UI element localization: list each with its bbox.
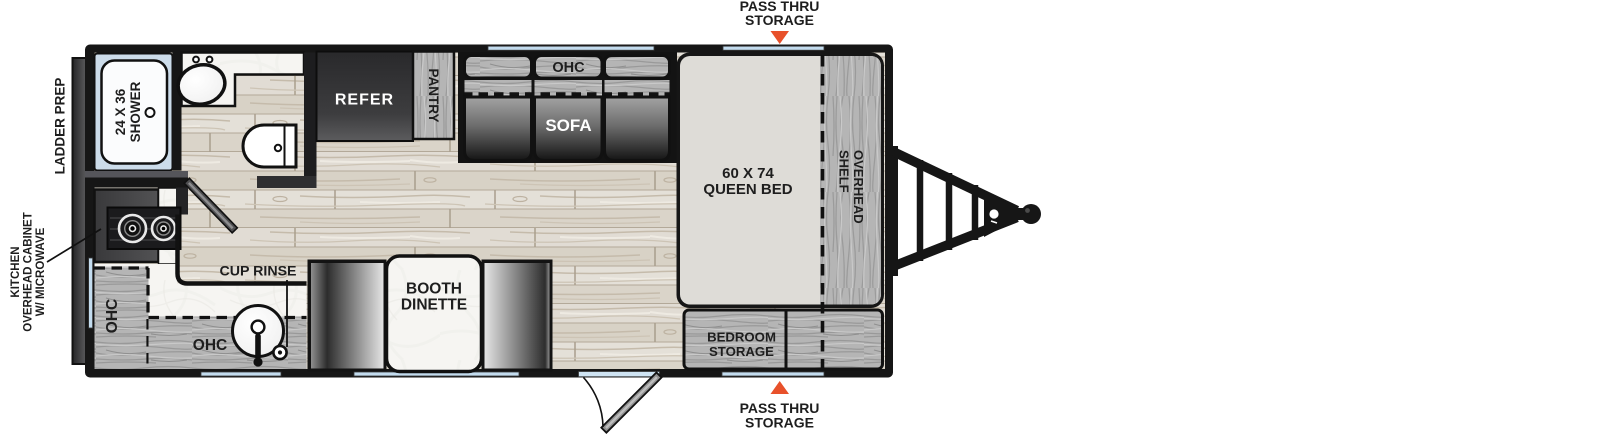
svg-text:STORAGE: STORAGE [745,12,814,28]
svg-text:LADDER PREP: LADDER PREP [53,78,68,175]
svg-text:DINETTE: DINETTE [401,297,467,314]
svg-text:SHOWER: SHOWER [128,81,143,142]
svg-text:BOOTH: BOOTH [406,281,462,298]
svg-text:REFER: REFER [335,92,394,109]
svg-text:BEDROOM: BEDROOM [707,330,776,345]
svg-text:STORAGE: STORAGE [745,415,814,431]
svg-text:CUP RINSE: CUP RINSE [220,264,297,280]
svg-text:PANTRY: PANTRY [426,69,441,123]
svg-text:KITCHEN: KITCHEN [10,246,22,297]
svg-text:OHC: OHC [104,299,121,333]
svg-text:W/ MICROWAVE: W/ MICROWAVE [35,227,47,316]
svg-text:OHC: OHC [552,60,585,76]
svg-text:60 X 74: 60 X 74 [722,165,774,182]
svg-text:STORAGE: STORAGE [709,344,774,359]
svg-text:OHC: OHC [193,337,227,354]
svg-text:OVERHEAD CABINET: OVERHEAD CABINET [23,212,35,331]
svg-text:SHELF: SHELF [837,150,852,193]
svg-text:QUEEN BED: QUEEN BED [703,181,792,198]
svg-text:OVERHEAD: OVERHEAD [851,150,866,224]
svg-text:SOFA: SOFA [545,116,591,135]
svg-text:24 X 36: 24 X 36 [113,88,128,135]
